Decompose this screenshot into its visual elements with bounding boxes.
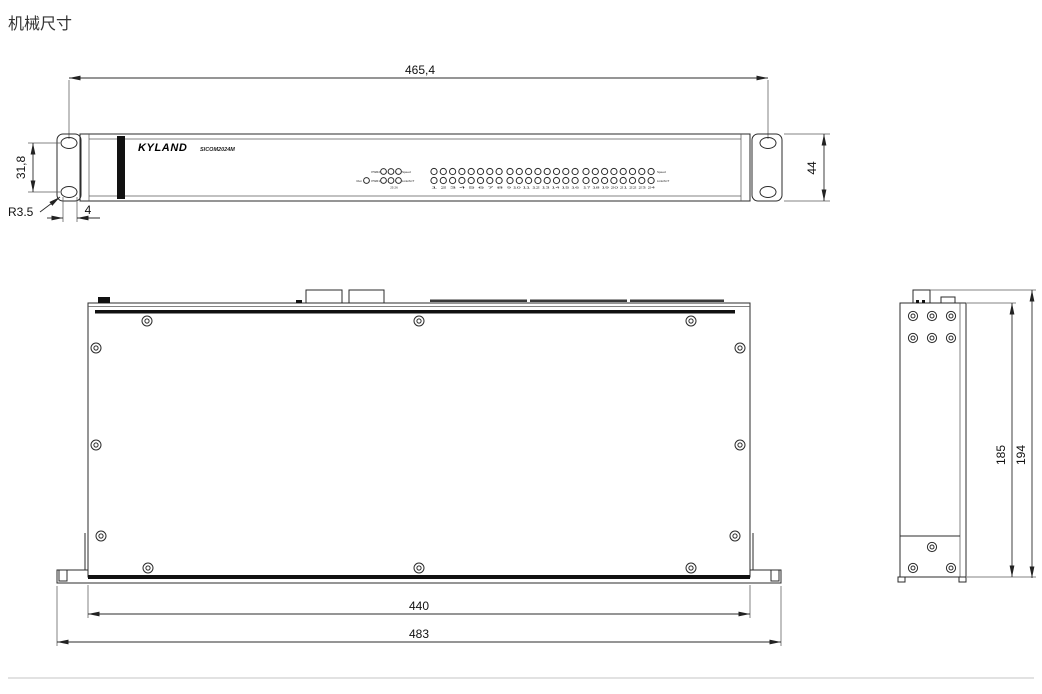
port-numbers-group-1: 1 2 3 4 5 6 7 8 [431,186,504,190]
dim-body-width: 440 [88,585,750,618]
uplink-port-numbers: 25 26 [390,186,398,190]
top-view-body [88,290,750,577]
left-mounting-ear [57,134,81,201]
speed-label: Speed [402,170,411,174]
model-label: SICOM2024M [200,147,235,153]
port-led-circles [431,168,654,183]
dim-ear-hole-radius: R3.5 [8,197,60,219]
dim-front-width: 465,4 [69,63,768,139]
ear-hole [61,138,77,149]
bracket-tab-left [59,570,67,581]
front-view-drawing: 465,4 KYLAND SICOM2024M PWR2 Speed [0,50,850,235]
pwr2-label: PWR2 [371,170,380,174]
bottom-divider [8,677,1034,679]
port-speed-label: Speed [657,170,666,174]
front-panel-stripe [117,136,125,199]
bracket-tab-right [771,570,779,581]
dim-side-depth-outer-label: 194 [1014,445,1028,465]
side-view-drawing: 185 194 [880,270,1042,600]
dim-body-width-label: 440 [409,599,429,613]
side-foot [898,577,905,582]
port-leds: 1 2 3 4 5 6 7 8 9 10 11 12 13 14 15 16 1… [431,168,670,189]
dim-front-width-label: 465,4 [405,63,435,77]
ear-hole [760,138,776,149]
port-numbers-group-2: 9 10 11 12 13 14 15 16 [507,186,580,190]
dim-ear-hole-offset-label: 4 [85,203,92,217]
mechanical-dimensions-page: 机械尺寸 465,4 [0,0,1042,694]
bracket-edge-bar [88,575,750,579]
ear-hole [61,187,77,198]
brand-logo: KYLAND [138,142,187,154]
port-numbers-group-3: 17 18 19 20 21 22 23 24 [583,186,656,190]
rear-connector-1 [306,290,342,303]
side-view-body [898,290,966,582]
front-panel-body: KYLAND SICOM2024M [80,134,750,201]
dim-overall-width: 483 [57,586,781,646]
rear-nub [98,297,110,303]
status-leds: PWR2 Speed Run PWR1 Link/ACT 25 26 [356,169,414,190]
linkact-label: Link/ACT [402,179,415,183]
pwr1-label: PWR1 [371,179,380,183]
dim-ear-hole-radius-label: R3.5 [8,205,34,219]
port-linkact-label: Link/ACT [657,179,670,183]
cover-screws [91,316,745,573]
dim-side-depth-inner: 185 [967,303,1036,577]
dim-ear-hole-spacing: 31,8 [14,143,60,192]
vent-slots [430,300,724,303]
rear-connector-2 [349,290,384,303]
top-view-drawing: 440 483 [0,270,850,660]
dim-front-height-label: 44 [805,161,819,175]
side-rear-connector [913,290,930,303]
dim-side-depth-inner-label: 185 [994,445,1008,465]
page-title: 机械尺寸 [8,10,72,34]
status-led-circles [364,169,402,184]
ear-hole [760,187,776,198]
front-edge-bar [95,310,735,314]
rack-bracket [57,533,781,583]
dim-ear-hole-spacing-label: 31,8 [14,155,28,179]
side-top-tab [941,297,955,303]
side-foot [959,577,966,582]
dim-overall-width-label: 483 [409,627,429,641]
rear-nub [296,300,302,303]
run-label: Run [356,179,362,183]
right-mounting-ear [752,134,782,201]
dim-side-depth-outer: 194 [930,290,1036,578]
dim-front-height: 44 [784,134,830,201]
side-screws [908,311,955,572]
